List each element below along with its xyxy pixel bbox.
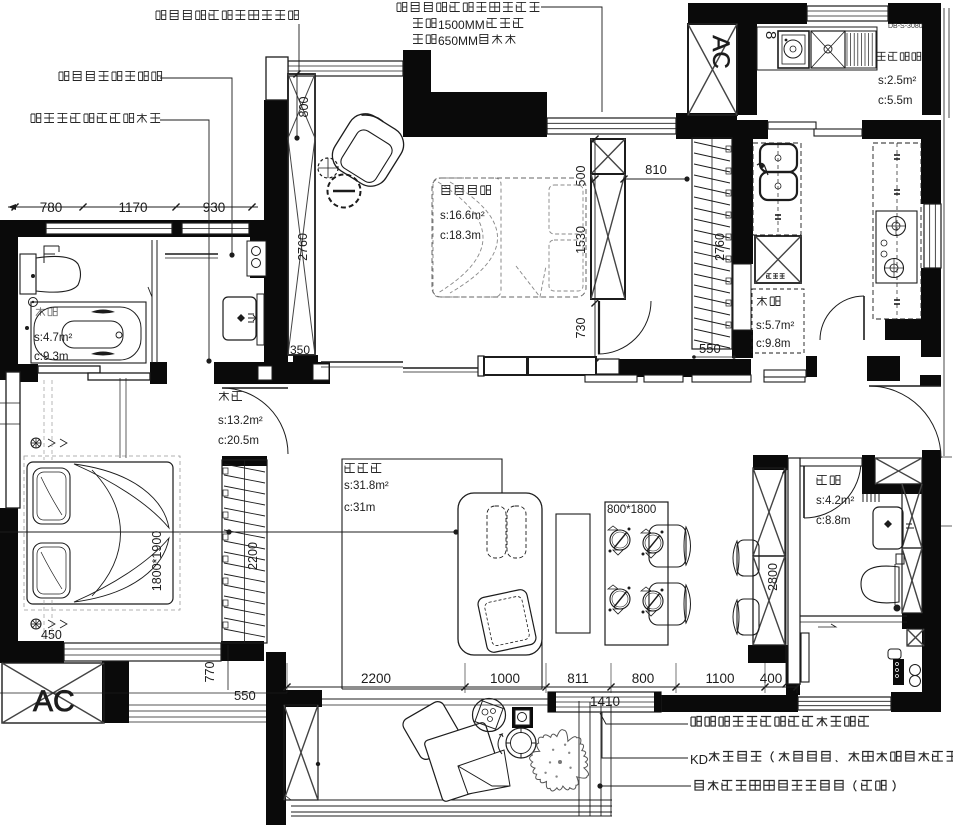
svg-text:AC: AC bbox=[33, 685, 75, 718]
svg-text:1170: 1170 bbox=[118, 200, 147, 215]
svg-text:1000: 1000 bbox=[490, 671, 520, 686]
svg-text:KD: KD bbox=[690, 752, 708, 767]
svg-text:2200: 2200 bbox=[361, 671, 391, 686]
svg-text:650MM: 650MM bbox=[438, 34, 478, 48]
svg-text:800*1800: 800*1800 bbox=[607, 504, 656, 516]
svg-text:s:13.2m²: s:13.2m² bbox=[218, 415, 263, 427]
svg-text:730: 730 bbox=[574, 318, 588, 339]
svg-text:1410: 1410 bbox=[590, 694, 620, 709]
svg-text:c:5.5m: c:5.5m bbox=[878, 95, 913, 107]
svg-text:1100: 1100 bbox=[705, 671, 734, 686]
svg-text:c:20.5m: c:20.5m bbox=[218, 435, 259, 447]
svg-text:c:8.8m: c:8.8m bbox=[816, 515, 851, 527]
svg-text:s:31.8m²: s:31.8m² bbox=[344, 480, 389, 492]
svg-text:350: 350 bbox=[290, 343, 310, 357]
svg-text:2800: 2800 bbox=[766, 563, 780, 591]
svg-text:s:16.6m²: s:16.6m² bbox=[440, 210, 485, 222]
svg-text:811: 811 bbox=[567, 671, 589, 686]
svg-text:550: 550 bbox=[699, 341, 721, 356]
svg-text:800: 800 bbox=[632, 671, 655, 686]
svg-text:8: 8 bbox=[762, 31, 779, 39]
svg-text:930: 930 bbox=[203, 200, 226, 215]
svg-text:1800*1900: 1800*1900 bbox=[150, 531, 164, 592]
svg-text:s:4.7m²: s:4.7m² bbox=[34, 332, 73, 344]
svg-text:c:18.3m: c:18.3m bbox=[440, 230, 481, 242]
svg-text:500: 500 bbox=[574, 166, 588, 187]
svg-text:770: 770 bbox=[203, 662, 217, 683]
svg-text:810: 810 bbox=[645, 162, 667, 177]
svg-text:AC: AC bbox=[707, 35, 734, 68]
svg-text:800: 800 bbox=[297, 97, 311, 118]
svg-text:c:31m: c:31m bbox=[344, 502, 375, 514]
svg-text:DB-S-3080: DB-S-3080 bbox=[888, 23, 923, 30]
svg-text:780: 780 bbox=[40, 200, 63, 215]
svg-text:2760: 2760 bbox=[713, 233, 727, 261]
svg-text:s:2.5m²: s:2.5m² bbox=[878, 75, 917, 87]
svg-text:400: 400 bbox=[760, 671, 783, 686]
svg-text:2760: 2760 bbox=[296, 233, 310, 261]
svg-text:1500MM: 1500MM bbox=[438, 18, 485, 32]
svg-text:550: 550 bbox=[234, 688, 256, 703]
svg-text:2200: 2200 bbox=[246, 542, 260, 570]
svg-text:s:5.7m²: s:5.7m² bbox=[756, 320, 795, 332]
svg-text:c:9.8m: c:9.8m bbox=[756, 338, 791, 350]
